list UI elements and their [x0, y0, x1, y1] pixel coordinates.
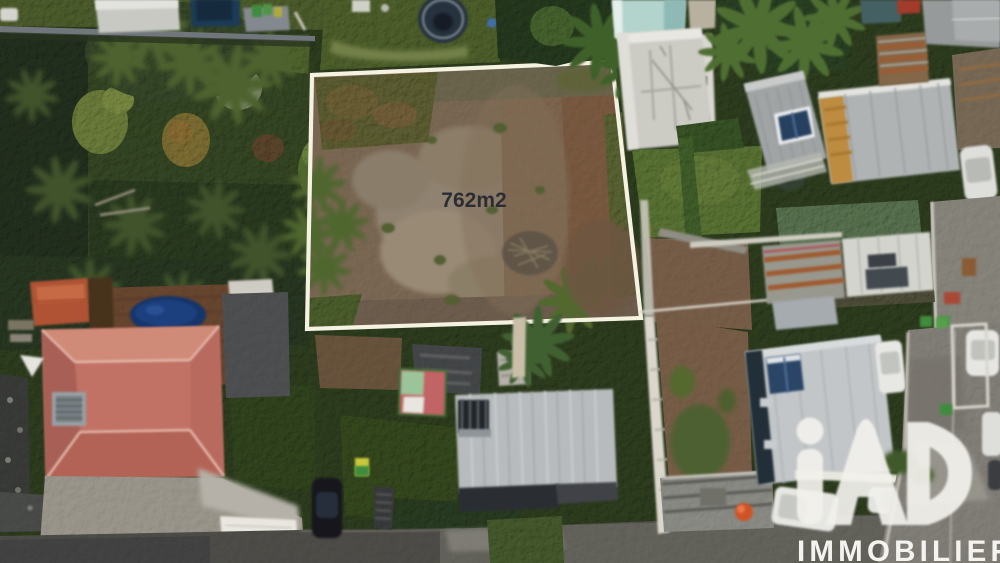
svg-text:762m2: 762m2 [441, 189, 506, 212]
svg-text:IMMOBILIER: IMMOBILIER [797, 535, 1000, 563]
